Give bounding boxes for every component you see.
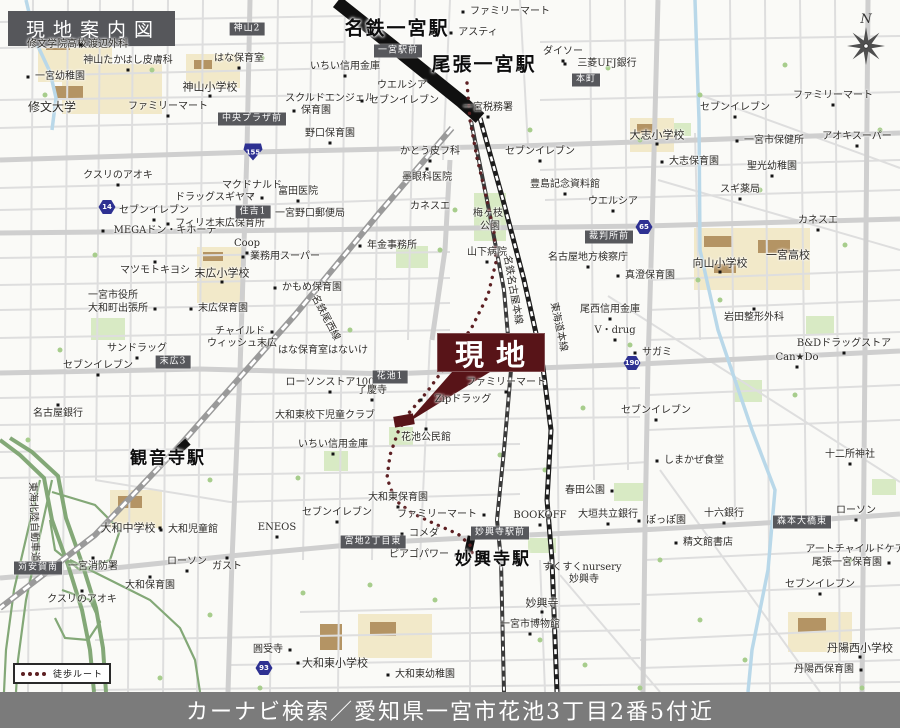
poi-label: セブンイレブン <box>119 206 189 216</box>
poi-label: セブンイレブン <box>302 508 372 518</box>
poi-label: 圓受寺 <box>253 645 283 655</box>
poi-label: 墨眼科医院 <box>402 173 452 183</box>
poi-label: ぽっぽ園 <box>646 516 686 526</box>
poi-dot <box>771 175 774 178</box>
poi-dot <box>238 67 241 70</box>
intersection-badge: 中央プラザ前 <box>218 113 286 126</box>
poi-label: 年金事務所 <box>367 241 417 251</box>
poi-label: 末広保育園 <box>198 304 248 314</box>
poi-label: 東海北陸自動車道 <box>27 482 40 562</box>
poi-label: 大和町出張所 <box>88 304 148 314</box>
site-callout: 現地 <box>437 333 545 372</box>
poi-label: 一宮高校 <box>766 250 810 261</box>
poi-label: ファミリーマート <box>793 91 873 101</box>
poi-label: いちい信用金庫 <box>310 62 380 72</box>
poi-dot <box>638 520 641 523</box>
poi-dot <box>153 219 156 222</box>
poi-label: アオキスーパー <box>822 132 892 142</box>
poi-label: すくすくnursery <box>542 563 621 573</box>
poi-dot <box>154 308 157 311</box>
poi-label: ローソン <box>167 557 207 567</box>
poi-label: クスリのアオキ <box>47 595 117 605</box>
poi-dot <box>117 184 120 187</box>
intersection-badge: 森本大橋東 <box>773 516 831 529</box>
poi-dot <box>487 116 490 119</box>
poi-dot <box>27 76 30 79</box>
poi-label: セブンイレブン <box>63 361 133 371</box>
poi-dot <box>855 519 858 522</box>
poi-label: かとう皮フ科 <box>400 147 460 157</box>
prefectural-route-shield: 14 <box>99 200 116 214</box>
poi-label: 名古屋銀行 <box>33 409 83 419</box>
poi-label: かもめ保育園 <box>282 283 342 293</box>
poi-label: 大和中学校 <box>101 523 156 534</box>
poi-label: 大志小学校 <box>630 130 685 141</box>
poi-dot <box>80 44 83 47</box>
route-dot-icon <box>28 672 32 676</box>
national-route-shield: 155 <box>244 144 263 161</box>
poi-label: 大和東保育園 <box>368 493 428 503</box>
poi-dot <box>796 366 799 369</box>
intersection-badge: 宮地2丁目東 <box>341 536 406 549</box>
poi-dot <box>486 261 489 264</box>
poi-dot <box>843 352 846 355</box>
poi-dot <box>387 674 390 677</box>
poi-label: 一宮市博物館 <box>500 620 560 630</box>
poi-dot <box>859 656 862 659</box>
poi-label: 名古屋地方検察庁 <box>548 253 628 263</box>
poi-label: 丹陽西保育園 <box>794 665 854 675</box>
poi-dot <box>167 115 170 118</box>
station-label: 観音寺駅 <box>130 444 206 469</box>
poi-label: 一宮野口郵便局 <box>275 209 345 219</box>
poi-label: 大垣共立銀行 <box>578 510 638 520</box>
poi-dot <box>832 104 835 107</box>
poi-dot <box>541 611 544 614</box>
poi-label: ローソン <box>836 506 876 516</box>
poi-label: 渡辺外科 <box>88 40 128 50</box>
poi-label: しまかぜ食堂 <box>664 456 724 466</box>
route-dot-icon <box>21 672 25 676</box>
poi-dot <box>297 662 300 665</box>
poi-label: 公園 <box>480 222 500 232</box>
poi-dot <box>190 308 193 311</box>
poi-label: Zipドラッグ <box>435 395 492 405</box>
poi-label: 真澄保育園 <box>625 271 675 281</box>
intersection-badge: 一宮駅前 <box>374 45 422 58</box>
prefectural-route-shield: 65 <box>636 220 653 234</box>
poi-label: ENEOS <box>258 523 296 533</box>
poi-label: セブンイレブン <box>621 406 691 416</box>
poi-label: 大和東幼稚園 <box>395 670 455 680</box>
poi-dot <box>611 490 614 493</box>
poi-label: はな保育室 <box>214 54 264 64</box>
poi-dot <box>209 95 212 98</box>
poi-label: 春田公園 <box>565 486 605 496</box>
poi-dot <box>529 633 532 636</box>
poi-label: 十二所神社 <box>825 450 875 460</box>
poi-label: ファミリーマート <box>128 102 208 112</box>
poi-dot <box>81 590 84 593</box>
site-map: N 現地案内図 現地 徒歩ルート 修文学院高校渡辺外科神山たかはし皮膚科一宮幼稚… <box>0 0 900 728</box>
poi-label: 一宮消防署 <box>68 562 118 572</box>
poi-label: 向山小学校 <box>693 258 748 269</box>
poi-dot <box>149 576 152 579</box>
poi-dot <box>154 261 157 264</box>
poi-label: 尾張一宮保育園 <box>812 558 882 568</box>
poi-dot <box>450 32 453 35</box>
walk-route-legend: 徒歩ルート <box>13 663 111 684</box>
intersection-badge: 裁判所前 <box>585 231 633 244</box>
poi-dot <box>634 352 637 355</box>
poi-label: 一宮幼稚園 <box>35 72 85 82</box>
map-overlay: 現地案内図 現地 徒歩ルート 修文学院高校渡辺外科神山たかはし皮膚科一宮幼稚園修… <box>0 0 900 692</box>
poi-dot <box>160 529 163 532</box>
poi-dot <box>274 287 277 290</box>
poi-dot <box>426 168 429 171</box>
poi-dot <box>564 193 567 196</box>
poi-label: マツモトキヨシ <box>120 266 190 276</box>
poi-label: アスティ <box>458 28 497 38</box>
poi-dot <box>483 514 486 517</box>
poi-label: セブンイレブン <box>785 580 855 590</box>
poi-label: ドラッグスギヤマ <box>175 193 255 203</box>
poi-dot <box>429 160 432 163</box>
poi-dot <box>656 460 659 463</box>
poi-label: 野口保育園 <box>305 129 355 139</box>
poi-label: 一宮税務署 <box>463 103 513 113</box>
intersection-badge: 神山2 <box>230 23 265 36</box>
poi-dot <box>102 230 105 233</box>
poi-label: MEGAドン・キホーテ <box>114 226 217 236</box>
poi-label: ウエルシア <box>588 197 638 207</box>
poi-label: 聖光幼稚園 <box>747 162 797 172</box>
poi-dot <box>344 75 347 78</box>
poi-label: 大和保育園 <box>125 581 175 591</box>
poi-dot <box>221 281 224 284</box>
poi-label: 一宮市保健所 <box>744 136 804 146</box>
poi-label: カネスエ <box>410 202 450 212</box>
poi-label: 豊島記念資料館 <box>530 180 600 190</box>
poi-label: はな保育室はないけ <box>278 346 368 356</box>
poi-label: 大和児童館 <box>168 525 218 535</box>
poi-dot <box>57 404 60 407</box>
station-label: 妙興寺駅 <box>455 545 531 570</box>
station-label: 名鉄一宮駅 <box>344 14 449 41</box>
poi-dot <box>246 252 249 255</box>
poi-dot <box>371 399 374 402</box>
poi-label: 十六銀行 <box>704 509 744 519</box>
poi-dot <box>607 523 610 526</box>
poi-dot <box>242 256 245 259</box>
poi-label: チャイルド <box>215 327 265 337</box>
poi-label: Coop <box>234 239 260 249</box>
poi-dot <box>329 142 332 145</box>
prefectural-route-shield: 190 <box>624 356 641 370</box>
poi-label: V・drug <box>594 326 635 336</box>
station-label: 尾張一宮駅 <box>431 50 536 77</box>
poi-label: 三菱UFJ銀行 <box>577 59 636 69</box>
poi-label: セブンイレブン <box>369 96 439 106</box>
poi-dot <box>723 522 726 525</box>
poi-dot <box>332 453 335 456</box>
poi-dot <box>860 669 863 672</box>
poi-dot <box>609 318 612 321</box>
poi-dot <box>276 536 279 539</box>
poi-dot <box>226 557 229 560</box>
poi-label: 神山小学校 <box>183 82 238 93</box>
intersection-badge: 本町 <box>572 74 600 87</box>
poi-label: ダイソー <box>543 47 583 57</box>
poi-label: 神山たかはし皮膚科 <box>83 56 173 66</box>
poi-dot <box>719 271 722 274</box>
poi-dot <box>361 100 364 103</box>
intersection-badge: 花池1 <box>373 371 408 384</box>
poi-label: 一宮市役所 <box>88 291 138 301</box>
poi-dot <box>127 69 130 72</box>
poi-label: コメダ <box>409 529 439 539</box>
poi-label: 妙興寺 <box>526 598 559 609</box>
poi-dot <box>656 143 659 146</box>
poi-label: B&Dドラッグストア <box>797 339 891 349</box>
poi-dot <box>425 428 428 431</box>
poi-dot <box>819 593 822 596</box>
carnav-address-bar: カーナビ検索／愛知県一宮市花池3丁目2番5付近 <box>0 692 900 728</box>
poi-label: いちい信用金庫 <box>298 440 368 450</box>
poi-dot <box>614 339 617 342</box>
poi-label: 名鉄尾西線 <box>309 294 341 343</box>
poi-label: 修文大学 <box>28 101 76 113</box>
poi-label: 大志保育園 <box>669 157 719 167</box>
poi-dot <box>539 160 542 163</box>
poi-dot <box>849 463 852 466</box>
poi-dot <box>329 391 332 394</box>
poi-label: アートチャイルドケア <box>805 545 900 555</box>
poi-dot <box>336 521 339 524</box>
poi-dot <box>261 197 264 200</box>
poi-dot <box>612 210 615 213</box>
intersection-badge: 末広3 <box>156 356 191 369</box>
poi-label: クスリのアオキ <box>83 171 153 181</box>
poi-label: 尾西信用金庫 <box>580 305 640 315</box>
poi-label: BOOKOFF <box>513 511 566 521</box>
prefectural-route-shield: 93 <box>256 661 273 675</box>
poi-label: サンドラッグ <box>107 344 167 354</box>
poi-dot <box>462 11 465 14</box>
poi-label: 保育園 <box>301 106 331 116</box>
poi-label: 名鉄名古屋本線 <box>501 255 523 326</box>
poi-label: 花池公民館 <box>401 433 451 443</box>
poi-dot <box>587 266 590 269</box>
poi-dot <box>564 63 567 66</box>
poi-label: マクドナルド <box>222 181 282 191</box>
poi-dot <box>136 357 139 360</box>
poi-label: 業務用スーパー <box>250 252 320 262</box>
poi-dot <box>359 245 362 248</box>
poi-dot <box>753 308 756 311</box>
poi-label: 大和東小学校 <box>302 658 368 669</box>
poi-dot <box>92 557 95 560</box>
poi-label: ファミリーマート <box>470 7 550 17</box>
poi-label: 大和東校下児童クラブ <box>275 411 375 421</box>
poi-label: カネスエ <box>798 216 838 226</box>
route-dot-icon <box>42 672 46 676</box>
poi-dot <box>539 524 542 527</box>
poi-label: ガスト <box>212 562 242 572</box>
poi-label: セブンイレブン <box>700 103 770 113</box>
poi-dot <box>655 419 658 422</box>
poi-dot <box>505 391 508 394</box>
poi-label: 了慶寺 <box>357 386 387 396</box>
poi-label: セブンイレブン <box>505 147 575 157</box>
poi-label: 富田医院 <box>278 187 318 197</box>
poi-dot <box>817 229 820 232</box>
poi-dot <box>856 145 859 148</box>
poi-dot <box>271 331 274 334</box>
poi-dot <box>289 649 292 652</box>
poi-label: Can★Do <box>775 353 818 363</box>
poi-dot <box>186 570 189 573</box>
poi-label: ファミリーマート <box>466 378 546 388</box>
poi-dot <box>293 110 296 113</box>
poi-label: 修文学院高校 <box>27 40 87 50</box>
poi-label: ウエルシア <box>377 81 427 91</box>
intersection-badge: 住吉1 <box>236 206 271 219</box>
poi-dot <box>661 161 664 164</box>
poi-label: 精文館書店 <box>683 538 733 548</box>
poi-label: 丹陽西小学校 <box>827 643 893 654</box>
route-dot-icon <box>35 672 39 676</box>
poi-label: 東海道本線 <box>548 302 568 353</box>
poi-label: スギ薬局 <box>720 185 760 195</box>
poi-dot <box>297 200 300 203</box>
poi-label: 妙興寺 <box>569 575 599 585</box>
poi-label: ピアゴパワー <box>389 550 449 560</box>
intersection-badge: 苅安賀南 <box>14 562 62 575</box>
poi-dot <box>617 275 620 278</box>
poi-label: 岩田整形外科 <box>724 313 784 323</box>
poi-label: 梅ヶ枝 <box>473 209 503 219</box>
poi-label: サガミ <box>642 348 672 358</box>
walk-route-label: 徒歩ルート <box>53 667 103 680</box>
poi-dot <box>420 399 423 402</box>
poi-label: ファミリーマート <box>397 510 477 520</box>
poi-dot <box>888 562 891 565</box>
poi-dot <box>739 198 742 201</box>
poi-dot <box>675 542 678 545</box>
poi-label: 末広小学校 <box>195 268 250 279</box>
poi-dot <box>734 116 737 119</box>
poi-dot <box>97 374 100 377</box>
poi-dot <box>736 140 739 143</box>
poi-label: ウィッシュ末広 <box>207 339 277 349</box>
intersection-badge: 妙興寺駅前 <box>471 527 529 540</box>
